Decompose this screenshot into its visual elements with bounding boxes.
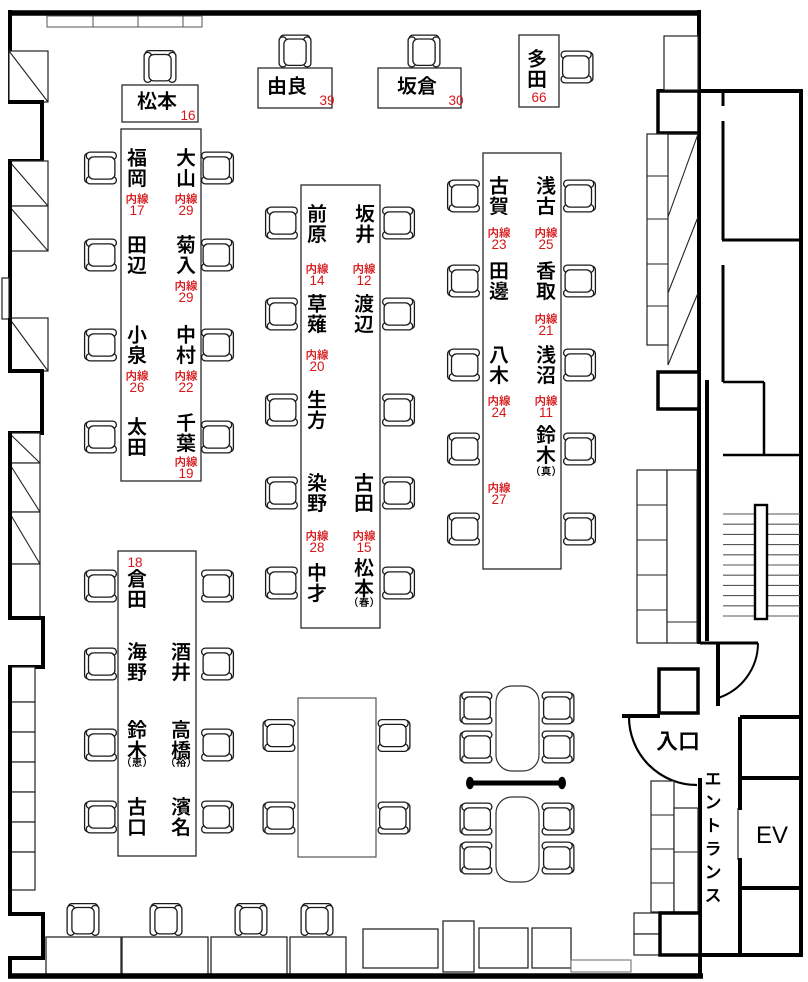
svg-text:18: 18: [127, 555, 142, 570]
svg-text:14: 14: [309, 273, 325, 288]
svg-text:20: 20: [309, 359, 324, 374]
svg-text:15: 15: [356, 540, 371, 555]
svg-text:28: 28: [309, 540, 324, 555]
svg-text:24: 24: [491, 405, 507, 420]
svg-text:17: 17: [129, 203, 144, 218]
svg-text:12: 12: [356, 273, 371, 288]
svg-text:EV: EV: [756, 822, 788, 849]
svg-text:21: 21: [538, 323, 553, 338]
svg-text:29: 29: [178, 290, 193, 305]
svg-text:66: 66: [531, 90, 546, 105]
svg-text:29: 29: [178, 203, 193, 218]
svg-text:16: 16: [180, 108, 195, 123]
svg-text:19: 19: [178, 466, 193, 481]
svg-text:26: 26: [129, 380, 144, 395]
svg-text:39: 39: [319, 93, 334, 108]
svg-text:30: 30: [448, 93, 463, 108]
svg-text:11: 11: [539, 405, 553, 420]
svg-text:23: 23: [491, 237, 506, 252]
svg-text:27: 27: [491, 492, 506, 507]
svg-text:25: 25: [538, 237, 553, 252]
svg-text:22: 22: [178, 380, 193, 395]
